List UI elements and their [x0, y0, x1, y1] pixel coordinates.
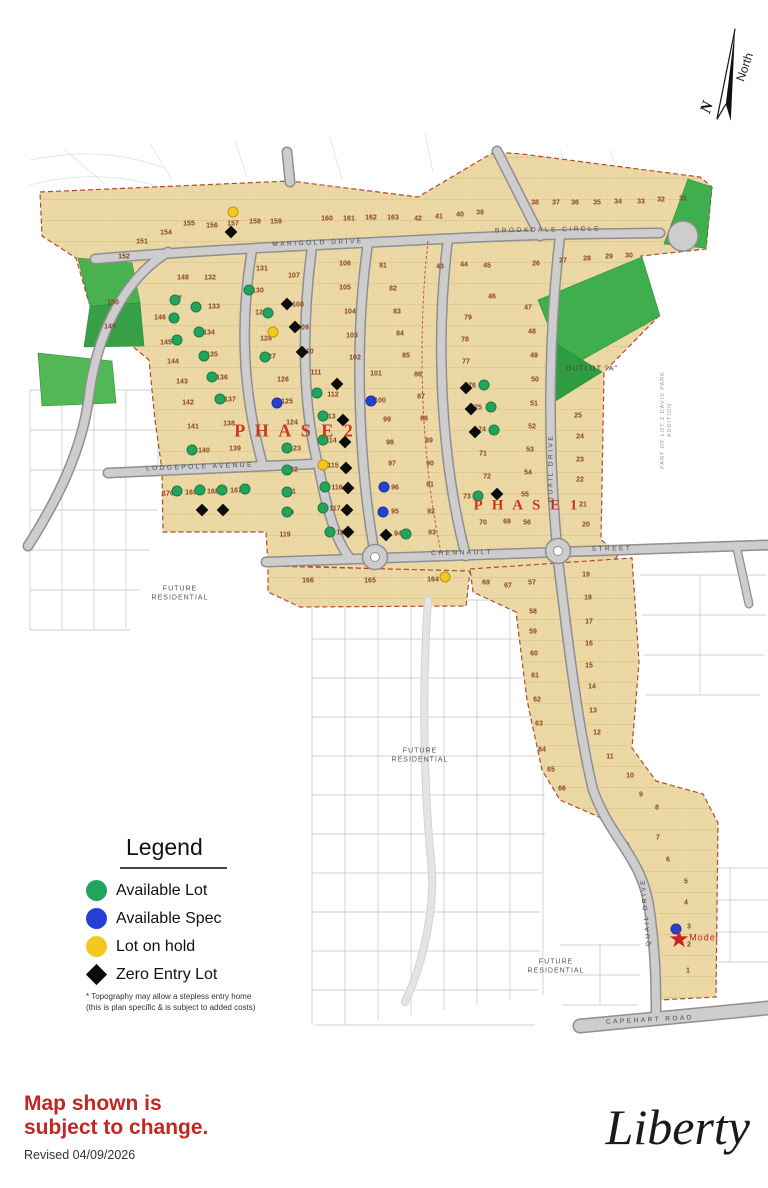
- legend-title: Legend: [120, 834, 227, 869]
- legend-item-zero-entry-lot: Zero Entry Lot: [86, 964, 336, 985]
- lot-on-hold-swatch-icon: [86, 936, 107, 957]
- available-spec-swatch-icon: [86, 908, 107, 929]
- map-change-notice: Map shown is subject to change.: [24, 1092, 208, 1140]
- available-lot-swatch-icon: [86, 880, 107, 901]
- revised-date: Revised 04/09/2026: [24, 1148, 135, 1162]
- legend-item-label: Lot on hold: [116, 938, 195, 956]
- cul-de-sac: [668, 221, 698, 251]
- notice-line-2: subject to change.: [24, 1116, 208, 1140]
- legend-items: Available LotAvailable SpecLot on holdZe…: [86, 880, 336, 985]
- community-name: Liberty: [606, 1098, 750, 1156]
- legend-item-label: Zero Entry Lot: [116, 966, 217, 984]
- zero-entry-lot-swatch-icon: [86, 964, 107, 985]
- site-plan-page: 1521511541551561571581591601611621631501…: [0, 0, 768, 1188]
- notice-line-1: Map shown is: [24, 1092, 208, 1116]
- north-label: North: [733, 51, 756, 83]
- north-n-letter: N: [697, 98, 718, 117]
- north-arrow-icon: North N: [696, 22, 760, 134]
- legend-panel: Legend Available LotAvailable SpecLot on…: [86, 834, 336, 1014]
- legend-item-lot-on-hold: Lot on hold: [86, 936, 336, 957]
- legend-item-label: Available Lot: [116, 882, 207, 900]
- legend-footnote: * Topography may allow a stepless entry …: [86, 992, 256, 1014]
- legend-item-available-lot: Available Lot: [86, 880, 336, 901]
- legend-item-label: Available Spec: [116, 910, 222, 928]
- legend-item-available-spec: Available Spec: [86, 908, 336, 929]
